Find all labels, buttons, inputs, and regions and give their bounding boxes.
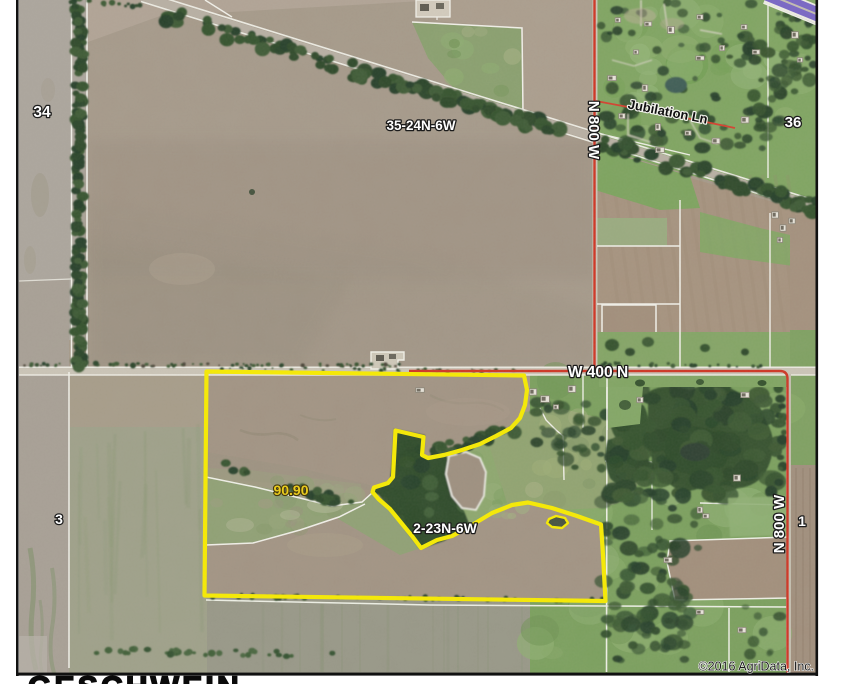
svg-text:GESCHWEIN: GESCHWEIN [28, 671, 242, 684]
svg-text:©2016 AgriData, Inc.: ©2016 AgriData, Inc. [698, 660, 814, 674]
svg-text:N 800 W: N 800 W [771, 494, 788, 553]
svg-text:W 400 N: W 400 N [568, 364, 628, 381]
svg-text:2-23N-6W: 2-23N-6W [413, 520, 478, 536]
svg-text:3: 3 [55, 511, 63, 527]
svg-text:N 800 W: N 800 W [585, 101, 602, 160]
svg-text:1: 1 [798, 513, 806, 529]
svg-text:36: 36 [785, 114, 802, 131]
svg-text:35-24N-6W: 35-24N-6W [386, 118, 455, 133]
svg-text:90.90: 90.90 [273, 482, 308, 498]
svg-text:34: 34 [33, 104, 51, 121]
